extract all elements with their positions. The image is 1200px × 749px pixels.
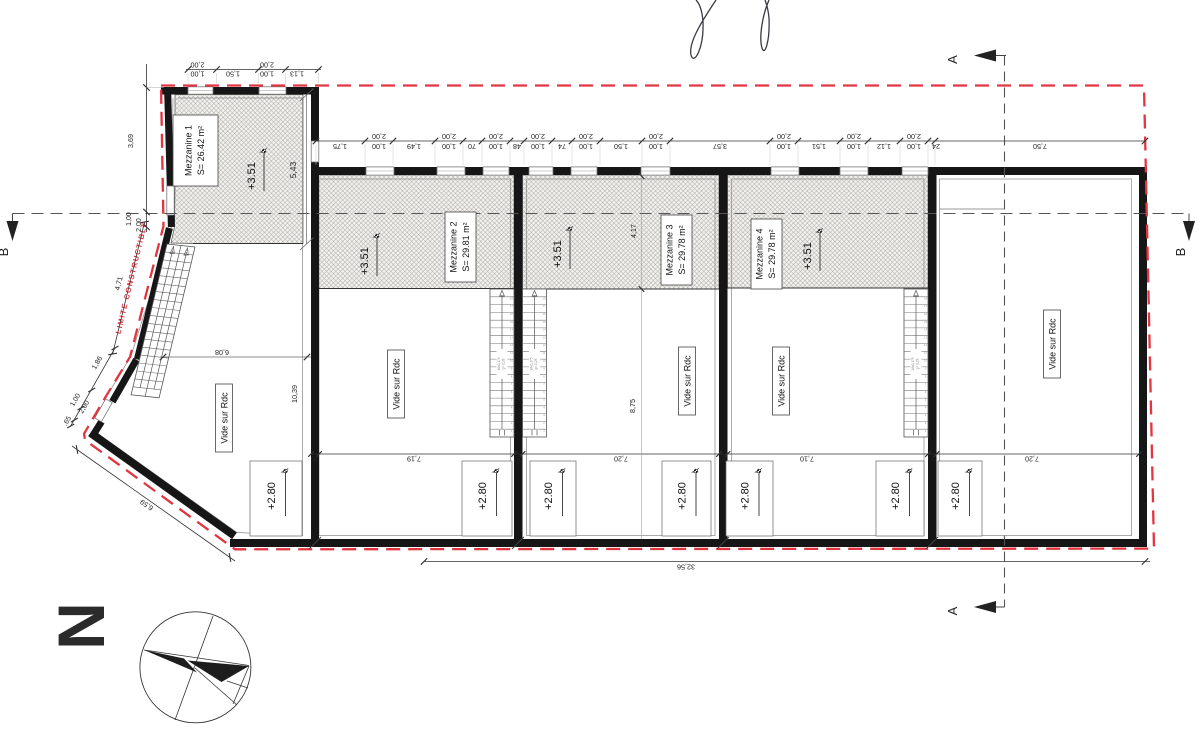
svg-text:Mezzanine 4: Mezzanine 4	[755, 228, 765, 279]
svg-text:N: N	[44, 602, 118, 650]
svg-text:1,00: 1,00	[191, 70, 205, 79]
svg-text:17: 17	[510, 304, 514, 308]
svg-text:4,17: 4,17	[631, 224, 638, 238]
svg-text:1,00: 1,00	[372, 142, 386, 151]
svg-text:S= 29.78 m²: S= 29.78 m²	[767, 229, 777, 278]
svg-text:S= 29.81 m²: S= 29.81 m²	[461, 222, 471, 271]
svg-text:1,00: 1,00	[442, 142, 456, 151]
svg-text:12: 12	[510, 343, 514, 347]
svg-text:B: B	[1173, 248, 1188, 257]
svg-text:2,00: 2,00	[907, 132, 921, 141]
svg-text:1,00: 1,00	[531, 142, 545, 151]
svg-text:10: 10	[542, 359, 546, 363]
svg-text:A: A	[945, 55, 960, 64]
svg-text:16: 16	[924, 312, 928, 316]
svg-text:1,50: 1,50	[614, 142, 628, 151]
svg-text:+3.51: +3.51	[359, 247, 371, 275]
svg-text:6,08: 6,08	[215, 348, 229, 357]
svg-text:S= 26.42 m²: S= 26.42 m²	[196, 126, 206, 175]
svg-text:48: 48	[513, 142, 521, 151]
svg-text:15: 15	[924, 320, 928, 324]
svg-text:11: 11	[924, 351, 927, 355]
svg-text:Mezzanine 3: Mezzanine 3	[665, 224, 675, 275]
svg-text:2,00: 2,00	[649, 132, 663, 141]
svg-text:74: 74	[558, 142, 566, 151]
svg-text:1,00: 1,00	[260, 70, 274, 79]
svg-text:2,00: 2,00	[442, 132, 456, 141]
svg-text:2,00: 2,00	[489, 132, 503, 141]
svg-text:1,00: 1,00	[777, 142, 791, 151]
svg-text:+3.51: +3.51	[246, 162, 258, 190]
svg-text:10,39: 10,39	[290, 385, 299, 403]
svg-text:1,51: 1,51	[812, 142, 826, 151]
svg-text:1,00: 1,00	[489, 142, 503, 151]
svg-text:15: 15	[542, 320, 546, 324]
svg-text:7,19: 7,19	[407, 455, 421, 464]
svg-text:18: 18	[510, 296, 514, 300]
svg-text:Vide sur Rdc: Vide sur Rdc	[220, 392, 230, 444]
svg-text:10: 10	[510, 359, 514, 363]
svg-text:11: 11	[543, 351, 546, 355]
svg-text:24: 24	[932, 142, 940, 151]
svg-text:+2.80: +2.80	[266, 482, 278, 510]
svg-text:1,00: 1,00	[649, 142, 663, 151]
svg-text:16: 16	[510, 312, 514, 316]
svg-text:2,00: 2,00	[777, 132, 791, 141]
svg-text:18: 18	[924, 296, 928, 300]
svg-text:+2.80: +2.80	[543, 482, 555, 510]
svg-text:g= 0,28: g= 0,28	[534, 358, 538, 369]
svg-text:11: 11	[510, 351, 513, 355]
svg-text:1,00: 1,00	[847, 142, 861, 151]
svg-text:14: 14	[542, 328, 546, 332]
svg-text:B: B	[0, 248, 11, 257]
svg-text:20: 20	[311, 455, 319, 464]
svg-text:+3.51: +3.51	[552, 240, 564, 268]
svg-text:g= 0,28: g= 0,28	[501, 358, 505, 369]
svg-text:Mezzanine 1: Mezzanine 1	[184, 125, 194, 176]
svg-text:12: 12	[924, 343, 928, 347]
svg-text:13: 13	[924, 335, 928, 339]
svg-text:12: 12	[542, 343, 546, 347]
svg-text:14: 14	[924, 328, 928, 332]
svg-text:+3.51: +3.51	[802, 242, 814, 270]
svg-text:14: 14	[510, 328, 514, 332]
svg-text:Vide sur Rdc: Vide sur Rdc	[683, 355, 693, 407]
svg-text:2,00: 2,00	[260, 61, 274, 70]
svg-text:17: 17	[542, 304, 546, 308]
svg-text:7,20: 7,20	[614, 455, 628, 464]
svg-text:2,00: 2,00	[191, 61, 205, 70]
svg-text:1,00: 1,00	[579, 142, 593, 151]
svg-text:32,56: 32,56	[677, 563, 695, 572]
svg-text:1,00: 1,00	[126, 212, 133, 226]
svg-text:2,00: 2,00	[136, 218, 143, 232]
svg-text:3,69: 3,69	[126, 134, 135, 148]
svg-text:17: 17	[924, 304, 928, 308]
svg-text:Vide sur Rdc: Vide sur Rdc	[392, 358, 402, 410]
svg-text:g= 0,28: g= 0,28	[915, 358, 919, 369]
svg-text:7,50: 7,50	[1033, 142, 1047, 151]
svg-text:S= 29.78 m²: S= 29.78 m²	[677, 225, 687, 274]
svg-text:+2.80: +2.80	[477, 482, 489, 510]
svg-text:13: 13	[510, 335, 514, 339]
svg-text:Vide sur Rdc: Vide sur Rdc	[777, 355, 787, 407]
svg-text:16: 16	[542, 312, 546, 316]
svg-text:2,00: 2,00	[372, 132, 386, 141]
svg-text:7,10: 7,10	[800, 455, 814, 464]
svg-text:1,75: 1,75	[333, 142, 347, 151]
svg-text:8,75: 8,75	[628, 399, 637, 413]
svg-text:1,00: 1,00	[907, 142, 921, 151]
svg-text:7,20: 7,20	[1025, 455, 1039, 464]
svg-text:1,49: 1,49	[407, 142, 421, 151]
svg-text:+2.80: +2.80	[890, 482, 902, 510]
svg-text:+2.80: +2.80	[950, 482, 962, 510]
svg-text:1,50: 1,50	[226, 70, 240, 79]
svg-text:+2.80: +2.80	[740, 482, 752, 510]
svg-text:2,00: 2,00	[847, 132, 861, 141]
svg-text:1,13: 1,13	[290, 70, 304, 79]
svg-text:Mezzanine 2: Mezzanine 2	[449, 221, 459, 272]
svg-text:30: 30	[928, 455, 936, 464]
svg-text:+2.80: +2.80	[677, 482, 689, 510]
svg-text:1,12: 1,12	[877, 142, 891, 151]
svg-text:13: 13	[542, 335, 546, 339]
svg-text:15: 15	[510, 320, 514, 324]
svg-text:20: 20	[514, 455, 522, 464]
svg-text:3,57: 3,57	[713, 142, 727, 151]
svg-text:2,00: 2,00	[531, 132, 545, 141]
svg-text:2,00: 2,00	[579, 132, 593, 141]
svg-text:Vide sur Rdc: Vide sur Rdc	[1048, 318, 1058, 370]
svg-text:A: A	[945, 606, 960, 615]
svg-text:10: 10	[924, 359, 928, 363]
svg-text:5,43: 5,43	[288, 161, 298, 178]
svg-text:18: 18	[542, 296, 546, 300]
svg-text:70: 70	[468, 142, 476, 151]
